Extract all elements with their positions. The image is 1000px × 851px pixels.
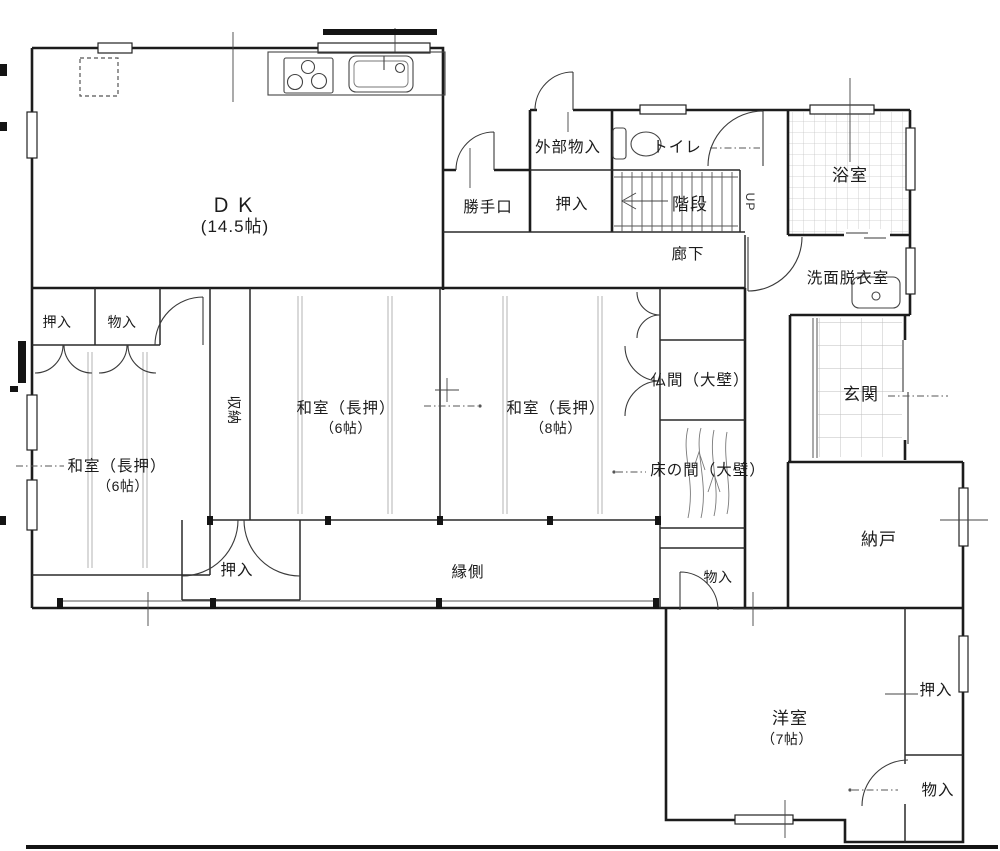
door-arcs bbox=[35, 72, 908, 806]
genkan-step-edge bbox=[813, 318, 817, 458]
label-kaidan: 階段 bbox=[672, 195, 708, 214]
label-yokushitsu: 浴室 bbox=[832, 166, 868, 185]
label-washitsu-right-size: （8帖） bbox=[530, 420, 582, 436]
label-gaibu-monoire: 外部物入 bbox=[535, 138, 601, 156]
label-genkan: 玄関 bbox=[843, 385, 879, 404]
label-senmen: 洗面脱衣室 bbox=[807, 269, 890, 287]
fridge-icon bbox=[80, 58, 118, 96]
label-monoire-center: 物入 bbox=[704, 569, 733, 585]
genkan-sliding-door bbox=[903, 340, 908, 444]
label-tokonoma: 床の間（大壁） bbox=[650, 461, 766, 479]
label-washitsu-bl: 和室（長押） bbox=[67, 457, 166, 475]
label-washitsu-bl-size: （6帖） bbox=[97, 478, 149, 494]
label-nando: 納戸 bbox=[861, 530, 897, 549]
label-washitsu-right: 和室（長押） bbox=[506, 399, 605, 417]
sink-icon bbox=[349, 56, 413, 92]
oshiire-left-door-fans bbox=[35, 345, 92, 373]
label-toilet: トイレ bbox=[652, 139, 702, 156]
label-washitsu-center-size: （6帖） bbox=[320, 420, 372, 436]
label-washitsu-center: 和室（長押） bbox=[296, 399, 395, 417]
label-dk-size: (14.5帖) bbox=[201, 217, 269, 236]
label-oshiire-left: 押入 bbox=[43, 314, 72, 330]
dk-room-door-arc bbox=[155, 297, 203, 345]
label-dk: ＤＫ bbox=[211, 195, 259, 217]
room-labels: ＤＫ (14.5帖) 外部物入 勝手口 押入 トイレ 階段 UP 廊下 浴室 洗… bbox=[43, 138, 955, 799]
label-monoire-br: 物入 bbox=[921, 781, 954, 799]
oshiire-right-door-fans bbox=[637, 292, 660, 338]
label-katteguchi: 勝手口 bbox=[463, 198, 513, 216]
label-engawa: 縁側 bbox=[451, 563, 484, 581]
toilet-door-arc bbox=[708, 111, 763, 166]
washroom-door-arc bbox=[748, 237, 802, 291]
gaibu-monoire-door-arc bbox=[535, 72, 573, 110]
label-youshitsu: 洋室 bbox=[772, 709, 808, 728]
stairs-direction-arrow bbox=[622, 193, 668, 209]
floor-plan: ＤＫ (14.5帖) 外部物入 勝手口 押入 トイレ 階段 UP 廊下 浴室 洗… bbox=[0, 0, 1000, 851]
floorplan-page: ＤＫ (14.5帖) 外部物入 勝手口 押入 トイレ 階段 UP 廊下 浴室 洗… bbox=[0, 0, 1000, 851]
label-rouka: 廊下 bbox=[671, 245, 704, 263]
label-oshiire-bottom: 押入 bbox=[220, 561, 253, 579]
label-up: UP bbox=[743, 193, 757, 212]
stove-icon bbox=[284, 58, 333, 93]
monoire-br-door-arc bbox=[862, 760, 908, 806]
label-youshitsu-size: （7帖） bbox=[761, 731, 813, 747]
label-oshiire-top: 押入 bbox=[555, 195, 588, 213]
label-monoire-left: 物入 bbox=[108, 314, 137, 330]
label-oshiire-br: 押入 bbox=[919, 681, 952, 699]
katteguchi-door-arc bbox=[456, 132, 494, 170]
label-butsuma: 仏間（大壁） bbox=[650, 371, 749, 389]
label-shuunou: 収納 bbox=[226, 396, 242, 425]
